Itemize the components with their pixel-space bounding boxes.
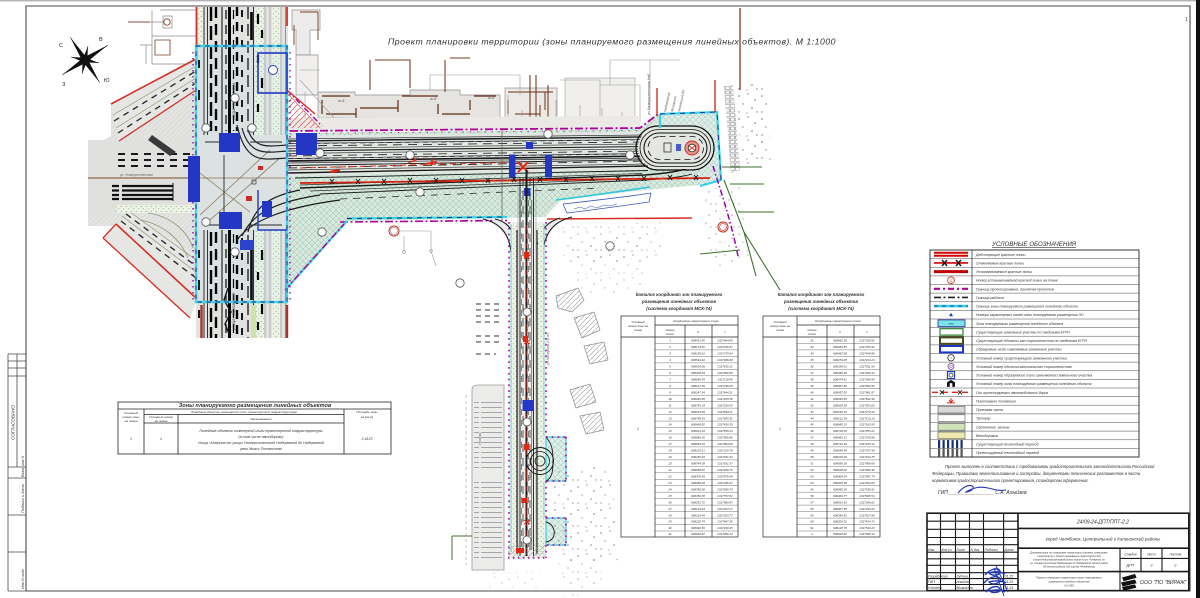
svg-text:точки: точки xyxy=(808,332,817,336)
svg-text:2317165.58: 2317165.58 xyxy=(716,397,733,401)
svg-text:Разработал: Разработал xyxy=(928,574,948,578)
svg-text:2317156.37: 2317156.37 xyxy=(716,345,733,349)
svg-text:Условный номер объекта капитал: Условный номер объекта капитального стро… xyxy=(976,365,1072,369)
svg-text:ж-д: ж-д xyxy=(429,96,437,101)
svg-text:М 1:000: М 1:000 xyxy=(1064,584,1074,588)
svg-text:Документация по планировке тер: Документация по планировке территории (п… xyxy=(1029,551,1108,555)
svg-text:Координаты характерных точек: Координаты характерных точек xyxy=(815,319,861,323)
svg-text:Действующие красные линии: Действующие красные линии xyxy=(975,253,1025,257)
svg-text:ул. Университетская: ул. Университетская xyxy=(119,173,153,177)
svg-text:В: В xyxy=(99,37,103,43)
svg-text:17: 17 xyxy=(668,442,672,446)
svg-text:2317876.46: 2317876.46 xyxy=(716,475,733,479)
svg-text:48: 48 xyxy=(810,442,814,446)
svg-text:606992.50: 606992.50 xyxy=(691,526,705,530)
svg-text:2317196.29: 2317196.29 xyxy=(716,384,733,388)
svg-text:2317693.21: 2317693.21 xyxy=(716,410,733,414)
svg-text:2317858.24: 2317858.24 xyxy=(716,429,733,433)
svg-text:26: 26 xyxy=(667,500,672,504)
svg-text:га (кв.м): га (кв.м) xyxy=(361,415,373,419)
svg-text:14: 14 xyxy=(668,423,672,427)
svg-text:2317318.96: 2317318.96 xyxy=(858,436,875,440)
svg-text:зона: зона xyxy=(947,323,954,326)
svg-text:Существующий пешеходный перехо: Существующий пешеходный переход xyxy=(976,443,1039,447)
svg-text:33: 33 xyxy=(810,345,814,349)
svg-text:2317933.20: 2317933.20 xyxy=(858,507,875,511)
svg-text:на плане: на плане xyxy=(155,419,168,423)
svg-text:10: 10 xyxy=(668,397,672,401)
svg-text:Подпись: Подпись xyxy=(985,548,999,552)
svg-text:Стадия: Стадия xyxy=(1124,553,1137,557)
svg-text:27: 27 xyxy=(667,507,672,511)
svg-text:1: 1 xyxy=(1185,17,1188,23)
svg-text:Граница районов: Граница районов xyxy=(976,296,1004,300)
svg-text:606163.19: 606163.19 xyxy=(833,410,847,414)
svg-text:Условный номер образуемого и/и: Условный номер образуемого и/или изменяе… xyxy=(976,374,1092,378)
svg-text:606464.77: 606464.77 xyxy=(833,494,847,498)
svg-text:ж-д: ж-д xyxy=(487,95,495,100)
svg-text:Кол.уч: Кол.уч xyxy=(942,548,952,552)
svg-text:2317336.47: 2317336.47 xyxy=(716,481,733,485)
svg-text:56: 56 xyxy=(810,494,814,498)
svg-text:01.25: 01.25 xyxy=(1005,574,1014,578)
svg-text:стоянка: стоянка xyxy=(478,433,482,445)
svg-text:20: 20 xyxy=(667,462,672,466)
svg-text:2: 2 xyxy=(668,345,671,349)
svg-text:2317087.76: 2317087.76 xyxy=(858,475,875,479)
svg-text:11: 11 xyxy=(668,403,671,407)
svg-text:размещения линейных объектов: размещения линейных объектов xyxy=(783,299,858,304)
svg-text:606708.50: 606708.50 xyxy=(691,475,705,479)
svg-text:2317537.48: 2317537.48 xyxy=(858,449,875,453)
svg-text:2317230.45: 2317230.45 xyxy=(716,526,733,530)
svg-text:32: 32 xyxy=(810,339,814,343)
svg-text:2317464.65: 2317464.65 xyxy=(716,339,733,343)
svg-text:УСЛОВНЫЕ ОБОЗНАЧЕНИЯ: УСЛОВНЫЕ ОБОЗНАЧЕНИЯ xyxy=(991,241,1077,248)
svg-text:Номер устанавливаемой красной: Номер устанавливаемой красной линии на п… xyxy=(976,279,1058,283)
svg-text:606762.58: 606762.58 xyxy=(691,494,705,498)
svg-text:1: 1 xyxy=(637,427,639,431)
svg-text:Листов: Листов xyxy=(1168,553,1181,557)
svg-text:606123.94: 606123.94 xyxy=(691,507,705,511)
svg-text:606405.98: 606405.98 xyxy=(833,481,847,485)
svg-text:606846.45: 606846.45 xyxy=(691,442,705,446)
svg-text:2317449.96: 2317449.96 xyxy=(858,352,875,356)
svg-text:2317757.82: 2317757.82 xyxy=(716,494,733,498)
svg-text:2317209.42: 2317209.42 xyxy=(858,371,875,375)
svg-text:Существующие земельные участки: Существующие земельные участки по сведен… xyxy=(976,331,1070,335)
svg-text:16: 16 xyxy=(668,436,672,440)
svg-text:606807.86: 606807.86 xyxy=(833,384,847,388)
svg-text:606857.05: 606857.05 xyxy=(833,390,847,394)
svg-text:Наименование: Наименование xyxy=(250,417,272,421)
svg-text:53: 53 xyxy=(810,475,814,479)
svg-text:Номера характерных точек зоны: Номера характерных точек зоны планируемо… xyxy=(976,313,1084,317)
svg-text:размещения линейных объектов: размещения линейных объектов xyxy=(641,299,716,304)
svg-text:47: 47 xyxy=(810,436,814,440)
svg-text:2,4123: 2,4123 xyxy=(361,437,373,441)
svg-text:Условный номер существующего з: Условный номер существующего земельного … xyxy=(976,356,1067,360)
svg-text:606419.09: 606419.09 xyxy=(833,455,847,459)
svg-text:2317855.31: 2317855.31 xyxy=(716,416,733,420)
svg-text:(система координат МСК-74): (система координат МСК-74) xyxy=(646,306,712,311)
svg-text:Каталог координат зон планируе: Каталог координат зон планируемого xyxy=(636,292,723,297)
svg-text:Изм: Изм xyxy=(928,548,935,552)
svg-text:606534.06: 606534.06 xyxy=(691,365,705,369)
svg-text:2317467.39: 2317467.39 xyxy=(716,520,733,524)
svg-text:606544.42: 606544.42 xyxy=(691,358,705,362)
svg-text:606754.19: 606754.19 xyxy=(691,403,705,407)
svg-text:606212.34: 606212.34 xyxy=(833,416,847,420)
svg-text:2317283.77: 2317283.77 xyxy=(716,513,733,517)
svg-text:12: 12 xyxy=(668,410,672,414)
svg-text:2317566.88: 2317566.88 xyxy=(716,436,733,440)
svg-text:42: 42 xyxy=(810,403,814,407)
svg-text:2317981.87: 2317981.87 xyxy=(858,390,875,394)
svg-text:ГИП ________________ С.А. Алы: ГИП ________________ С.А. Алыйзев xyxy=(938,489,1027,496)
svg-text:Мыкийлов: Мыкийлов xyxy=(957,586,973,590)
svg-text:606431.95: 606431.95 xyxy=(691,339,705,343)
svg-text:2317435.91: 2317435.91 xyxy=(858,487,875,491)
svg-text:2317908.69: 2317908.69 xyxy=(858,462,875,466)
svg-text:N док: N док xyxy=(971,548,980,552)
svg-text:606728.03: 606728.03 xyxy=(833,429,847,433)
svg-text:2317159.55: 2317159.55 xyxy=(716,403,733,407)
svg-text:С: С xyxy=(59,43,63,49)
svg-text:Алыйзев: Алыйзев xyxy=(956,580,971,584)
svg-text:Зубова: Зубова xyxy=(957,574,968,578)
svg-text:2317306.09: 2317306.09 xyxy=(716,358,733,362)
svg-text:Координаты характерных точек: Координаты характерных точек xyxy=(673,319,719,323)
svg-text:31: 31 xyxy=(668,532,672,536)
svg-text:Линейные объекты инженерной и/: Линейные объекты инженерной и/или трансп… xyxy=(190,410,298,414)
svg-text:36: 36 xyxy=(810,365,814,369)
svg-text:2317228.76: 2317228.76 xyxy=(716,449,733,453)
svg-text:2317408.70: 2317408.70 xyxy=(716,468,733,472)
svg-text:606128.79: 606128.79 xyxy=(833,526,847,530)
svg-text:Проект выполнен в соответствии: Проект выполнен в соответствии с требова… xyxy=(945,464,1155,469)
svg-text:2317632.39: 2317632.39 xyxy=(858,397,875,401)
svg-text:606829.92: 606829.92 xyxy=(691,532,705,536)
svg-text:61: 61 xyxy=(810,526,814,530)
svg-text:606254.08: 606254.08 xyxy=(833,358,847,362)
svg-text:нормативов градостроительного: нормативов градостроительного проектиров… xyxy=(932,478,1089,483)
svg-text:ул. Университетская Набережная: ул. Университетская Набережная до Набере… xyxy=(1029,561,1108,565)
svg-text:606662.28: 606662.28 xyxy=(833,339,847,343)
svg-text:606858.26: 606858.26 xyxy=(833,462,847,466)
svg-text:28: 28 xyxy=(667,513,672,517)
svg-text:1: 1 xyxy=(130,437,132,441)
svg-text:59: 59 xyxy=(810,513,814,517)
svg-text:Граница зоны планируемого разм: Граница зоны планируемого размещения лин… xyxy=(976,305,1078,309)
svg-text:2317944.09: 2317944.09 xyxy=(858,481,875,485)
svg-text:2317163.95: 2317163.95 xyxy=(858,423,875,427)
svg-text:2317110.98: 2317110.98 xyxy=(716,378,732,382)
svg-text:606688.30: 606688.30 xyxy=(691,436,705,440)
svg-text:54: 54 xyxy=(810,481,814,485)
svg-text:ж-д: ж-д xyxy=(337,98,345,103)
svg-text:606508.39: 606508.39 xyxy=(833,403,847,407)
svg-text:2317273.44: 2317273.44 xyxy=(858,410,875,414)
svg-text:606996.82: 606996.82 xyxy=(691,468,705,472)
svg-text:606716.36: 606716.36 xyxy=(833,442,847,446)
svg-text:606614.33: 606614.33 xyxy=(833,500,847,504)
svg-text:606699.92: 606699.92 xyxy=(691,423,705,427)
svg-text:1: 1 xyxy=(779,427,781,431)
svg-text:606829.92: 606829.92 xyxy=(833,532,847,536)
svg-text:ул.Чичерина 2-й оч.: ул.Чичерина 2-й оч. xyxy=(546,332,550,366)
svg-text:2317639.12: 2317639.12 xyxy=(716,365,733,369)
svg-text:41: 41 xyxy=(810,397,814,401)
svg-text:606369.28: 606369.28 xyxy=(833,371,847,375)
svg-text:29: 29 xyxy=(667,520,672,524)
svg-text:606219.49: 606219.49 xyxy=(691,513,705,517)
svg-text:2317955.21: 2317955.21 xyxy=(858,429,875,433)
svg-text:46: 46 xyxy=(810,429,814,433)
svg-text:606467.68: 606467.68 xyxy=(833,352,847,356)
svg-text:606345.82: 606345.82 xyxy=(833,513,847,517)
svg-text:606485.15: 606485.15 xyxy=(833,436,847,440)
svg-text:Н.Контр: Н.Контр xyxy=(928,586,942,590)
svg-text:Проект планировки территории: Проект планировки территории (зоны плани… xyxy=(388,37,836,47)
svg-text:2317644.31: 2317644.31 xyxy=(716,390,733,394)
svg-text:15: 15 xyxy=(668,429,672,433)
svg-text:Ось проектируемых автомобильны: Ось проектируемых автомобильных дорог xyxy=(976,391,1048,395)
svg-text:ул.Университетская Наб.: ул.Университетская Наб. xyxy=(647,73,651,116)
svg-text:Федерации, Правилами землеполь: Федерации, Правилами землепользования и … xyxy=(932,471,1141,476)
svg-text:плане: плане xyxy=(634,328,642,332)
svg-text:606984.55: 606984.55 xyxy=(833,345,847,349)
svg-text:2317066.14: 2317066.14 xyxy=(716,532,733,536)
svg-text:Линейные объекты инженерной и/: Линейные объекты инженерной и/или трансп… xyxy=(198,429,322,433)
svg-text:2317683.98: 2317683.98 xyxy=(716,442,733,446)
svg-text:25: 25 xyxy=(667,494,672,498)
svg-text:606159.91: 606159.91 xyxy=(691,352,705,356)
svg-text:22: 22 xyxy=(667,475,672,479)
svg-text:606255.93: 606255.93 xyxy=(691,455,705,459)
svg-text:606338.01: 606338.01 xyxy=(833,365,847,369)
svg-text:2317783.42: 2317783.42 xyxy=(858,345,875,349)
svg-text:49: 49 xyxy=(810,449,814,453)
svg-text:город Челябинск, Центральный и: город Челябинск, Центральный и Калининск… xyxy=(1046,537,1161,542)
svg-text:606965.26: 606965.26 xyxy=(833,487,847,491)
svg-text:реки Миасс Потапочева: реки Миасс Потапочева xyxy=(239,447,281,451)
svg-text:43: 43 xyxy=(810,410,814,414)
svg-text:Инв.N подл: Инв.N подл xyxy=(21,568,25,589)
svg-text:606391.72: 606391.72 xyxy=(691,500,705,504)
svg-text:606796.53: 606796.53 xyxy=(691,416,705,420)
svg-text:Граница проектирования, принят: Граница проектирования, принятая проекто… xyxy=(976,287,1055,291)
svg-text:2317430.30: 2317430.30 xyxy=(716,423,733,427)
svg-text:Проект планировки территории (: Проект планировки территории (зоны плани… xyxy=(1036,576,1102,580)
svg-text:территории и проект межевания: территории и проект межевания территории… xyxy=(1037,554,1101,558)
svg-text:606232.74: 606232.74 xyxy=(691,520,705,524)
svg-text:21: 21 xyxy=(667,468,672,472)
svg-text:Подпись и дата: Подпись и дата xyxy=(21,484,25,513)
svg-text:606599.99: 606599.99 xyxy=(833,449,847,453)
svg-text:2317605.54: 2317605.54 xyxy=(858,494,875,498)
svg-text:Отменяемые красные линии: Отменяемые красные линии xyxy=(976,262,1024,266)
svg-text:2317288.61: 2317288.61 xyxy=(858,500,875,504)
svg-text:строительства автомобильных до: строительства автомобильных дорог по ул.… xyxy=(1033,558,1105,562)
svg-text:2317066.14: 2317066.14 xyxy=(858,532,875,536)
svg-text:2317279.04: 2317279.04 xyxy=(716,352,733,356)
svg-text:N9 жилого района N11 города Че: N9 жилого района N11 города Челябинска) xyxy=(1043,565,1095,569)
svg-text:606164.56: 606164.56 xyxy=(691,410,705,414)
svg-text:2317911.59: 2317911.59 xyxy=(858,365,874,369)
svg-text:606328.63: 606328.63 xyxy=(691,371,705,375)
svg-text:2317968.67: 2317968.67 xyxy=(716,500,733,504)
svg-text:2317423.17: 2317423.17 xyxy=(716,507,733,511)
svg-text:2317491.04: 2317491.04 xyxy=(716,455,733,459)
svg-text:ООО "ПО "ВИРАЖ": ООО "ПО "ВИРАЖ" xyxy=(1140,580,1188,586)
svg-text:45: 45 xyxy=(810,423,814,427)
svg-text:606174.82: 606174.82 xyxy=(691,345,705,349)
svg-text:Проектируемый пешеходный перех: Проектируемый пешеходный переход xyxy=(976,451,1039,455)
svg-text:23: 23 xyxy=(667,481,672,485)
svg-text:2317200.82: 2317200.82 xyxy=(858,339,875,343)
svg-text:Лист: Лист xyxy=(1146,553,1156,557)
svg-text:44: 44 xyxy=(810,416,814,420)
svg-text:размещения линейных объектов): размещения линейных объектов) xyxy=(1048,580,1090,584)
svg-text:2317185.12: 2317185.12 xyxy=(858,442,875,446)
svg-text:Площадь зоны: Площадь зоны xyxy=(356,410,378,414)
svg-text:37: 37 xyxy=(810,371,814,375)
svg-text:606478.61: 606478.61 xyxy=(833,378,847,382)
svg-text:606304.52: 606304.52 xyxy=(833,520,847,524)
svg-text:на плане: на плане xyxy=(125,419,138,423)
svg-text:2317164.75: 2317164.75 xyxy=(858,455,875,459)
svg-text:606690.59: 606690.59 xyxy=(691,378,705,382)
svg-text:Озеленение, газоны: Озеленение, газоны xyxy=(976,425,1010,429)
svg-text:606680.15: 606680.15 xyxy=(833,423,847,427)
svg-text:606913.18: 606913.18 xyxy=(691,429,705,433)
svg-text:плане: плане xyxy=(776,328,784,332)
svg-text:60: 60 xyxy=(810,520,814,524)
svg-text:55: 55 xyxy=(810,487,814,491)
svg-text:2317600.36: 2317600.36 xyxy=(858,468,875,472)
svg-text:50: 50 xyxy=(810,455,814,459)
svg-text:51: 51 xyxy=(810,462,814,466)
svg-text:35: 35 xyxy=(810,358,814,362)
svg-text:2317631.57: 2317631.57 xyxy=(716,462,733,466)
svg-text:40: 40 xyxy=(810,390,814,394)
svg-text:2317817.80: 2317817.80 xyxy=(858,513,875,517)
svg-text:2317424.73: 2317424.73 xyxy=(858,520,875,524)
svg-text:38: 38 xyxy=(810,378,814,382)
svg-text:Тротуар: Тротуар xyxy=(976,417,990,421)
svg-text:606247.54: 606247.54 xyxy=(691,390,705,394)
svg-text:Устанавливаемые красные линии: Устанавливаемые красные линии xyxy=(976,270,1032,274)
svg-text:13: 13 xyxy=(668,416,672,420)
svg-text:19: 19 xyxy=(668,455,672,459)
svg-text:2317386.95: 2317386.95 xyxy=(858,378,875,382)
svg-text:606806.54: 606806.54 xyxy=(833,475,847,479)
svg-text:18: 18 xyxy=(668,449,672,453)
svg-text:34: 34 xyxy=(810,352,814,356)
svg-text:точки: точки xyxy=(666,332,675,336)
svg-text:Велодорожка: Велодорожка xyxy=(976,434,998,438)
svg-text:ГИП: ГИП xyxy=(928,580,935,584)
svg-text:2317656.95: 2317656.95 xyxy=(716,371,733,375)
svg-text:58: 58 xyxy=(810,507,814,511)
svg-text:Зоны планируемого размещения л: Зоны планируемого размещения линейных об… xyxy=(179,402,332,409)
svg-text:Образуемые и/или изменяемые з: Образуемые и/или изменяемые земельные уч… xyxy=(976,348,1062,352)
svg-text:Ю: Ю xyxy=(104,78,110,84)
svg-text:24/09-24-ДПТ/ППТ-2.2: 24/09-24-ДПТ/ППТ-2.2 xyxy=(1076,520,1129,526)
svg-text:2317113.10: 2317113.10 xyxy=(858,416,874,420)
svg-text:Пикетажное положение: Пикетажное положение xyxy=(976,400,1016,404)
svg-text:Каталог координат зон планируе: Каталог координат зон планируемого xyxy=(778,292,865,297)
svg-text:(в том числе автодороги): (в том числе автодороги) xyxy=(239,435,284,439)
svg-text:30: 30 xyxy=(668,526,672,530)
svg-text:Зона планируемого размещения л: Зона планируемого размещения линейного о… xyxy=(976,322,1063,326)
svg-text:52: 52 xyxy=(810,468,814,472)
svg-text:606995.68: 606995.68 xyxy=(833,397,847,401)
svg-text:24: 24 xyxy=(667,487,672,491)
svg-text:2317553.63: 2317553.63 xyxy=(858,403,875,407)
svg-text:606780.06: 606780.06 xyxy=(691,487,705,491)
svg-text:Взам. инв.N: Взам. инв.N xyxy=(21,456,25,477)
svg-text:2317214.23: 2317214.23 xyxy=(858,358,875,362)
svg-text:Дата: Дата xyxy=(1004,548,1014,552)
svg-text:606628.02: 606628.02 xyxy=(833,468,847,472)
svg-text:Проезжая часть: Проезжая часть xyxy=(976,408,1004,412)
svg-text:(система координат МСК-74): (система координат МСК-74) xyxy=(788,306,854,311)
svg-text:39: 39 xyxy=(810,384,814,388)
svg-text:606784.08: 606784.08 xyxy=(691,462,705,466)
svg-text:1: 1 xyxy=(160,437,162,441)
svg-text:Лист: Лист xyxy=(956,548,966,552)
svg-text:606960.09: 606960.09 xyxy=(691,481,705,485)
svg-text:Улица Чичерина от улицы Универ: Улица Чичерина от улицы Университетской … xyxy=(198,441,324,445)
svg-text:Существующие объекты кап.строи: Существующие объекты кап.строительства п… xyxy=(976,339,1087,343)
svg-text:ДПТ: ДПТ xyxy=(1125,563,1135,568)
svg-text:606220.51: 606220.51 xyxy=(691,449,705,453)
svg-text:2317808.70: 2317808.70 xyxy=(716,487,733,491)
svg-text:606935.68: 606935.68 xyxy=(691,397,705,401)
svg-text:Условный номер зоны планируемо: Условный номер зоны планируемого размеще… xyxy=(976,382,1091,386)
svg-text:606147.56: 606147.56 xyxy=(691,384,705,388)
svg-text:2317543.26: 2317543.26 xyxy=(858,526,875,530)
svg-text:СОГЛАСОВАНО: СОГЛАСОВАНО xyxy=(11,405,16,440)
svg-text:2317692.65: 2317692.65 xyxy=(858,384,875,388)
svg-text:606907.98: 606907.98 xyxy=(833,507,847,511)
svg-text:57: 57 xyxy=(810,500,814,504)
